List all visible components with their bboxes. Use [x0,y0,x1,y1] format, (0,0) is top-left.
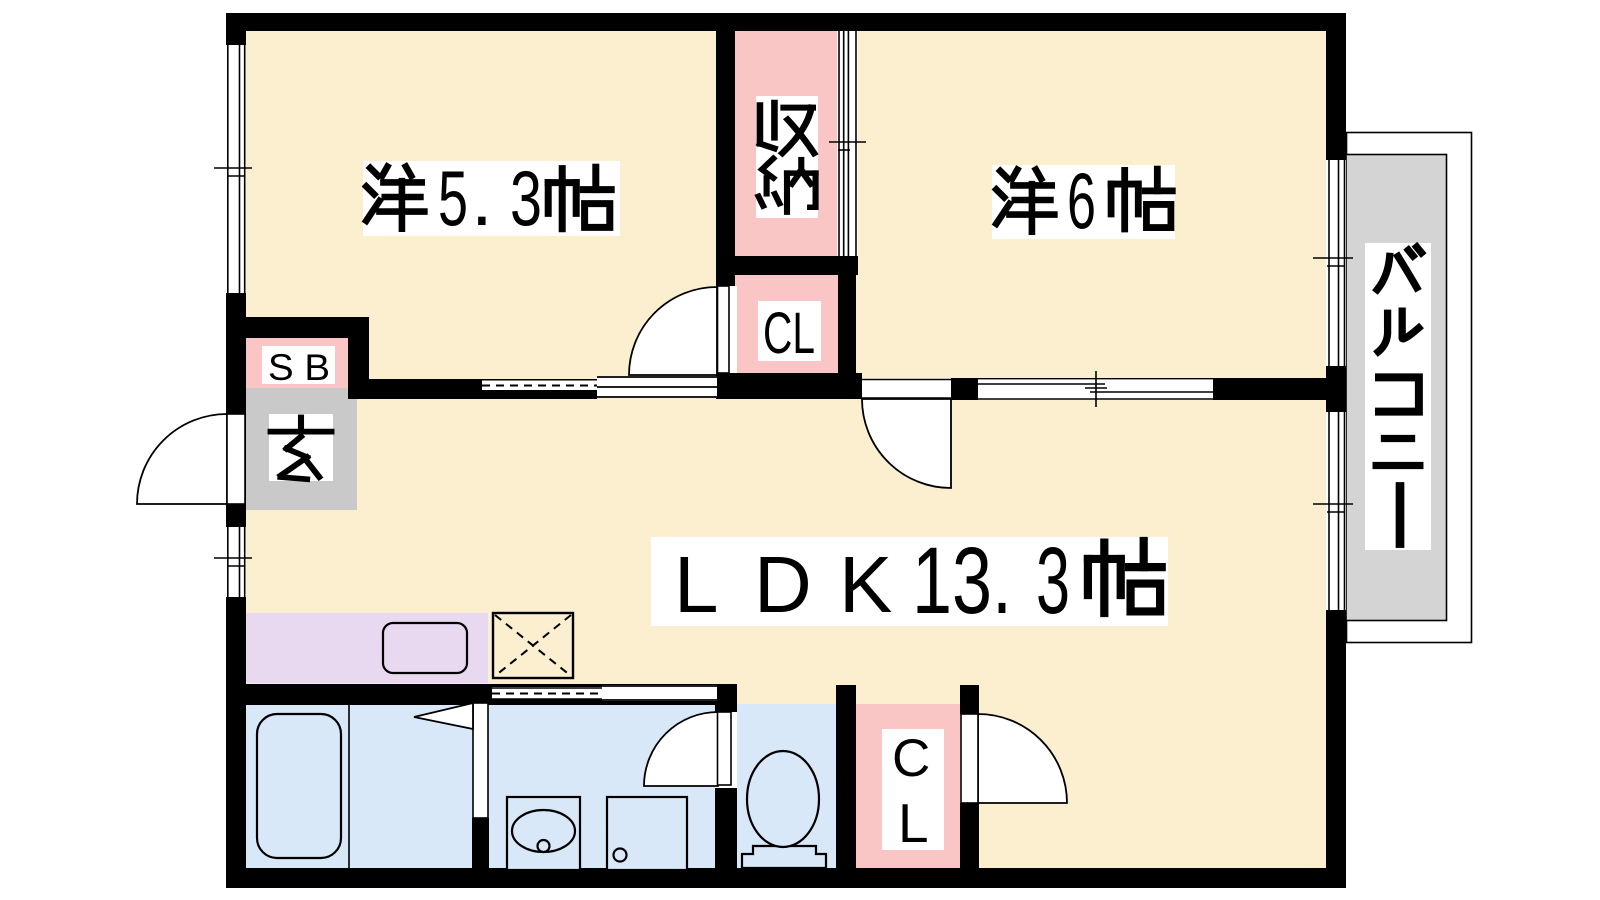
svg-text:5: 5 [438,154,468,242]
svg-text:6: 6 [1067,156,1096,245]
svg-text:3: 3 [1036,528,1070,634]
svg-text:13.: 13. [912,528,1012,634]
svg-text:S B: S B [268,347,330,388]
svg-text:L: L [674,540,719,629]
svg-text:3: 3 [510,154,542,242]
svg-text:C: C [892,729,930,788]
svg-text:CL: CL [763,301,815,366]
svg-text:K: K [839,540,892,629]
svg-text:D: D [754,540,812,629]
svg-text:L: L [898,792,929,854]
svg-text:.: . [471,154,493,242]
